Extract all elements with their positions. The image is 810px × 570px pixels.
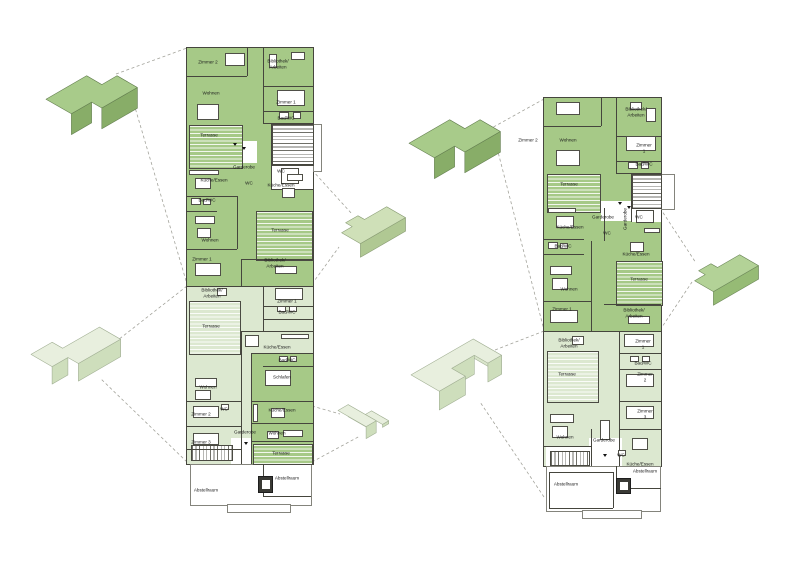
door-marker <box>618 202 622 205</box>
furniture <box>556 150 580 166</box>
wall <box>263 48 264 123</box>
room-label: Abstellraum <box>554 481 578 487</box>
stairs <box>550 451 590 466</box>
furniture <box>550 414 574 423</box>
door-marker <box>242 147 246 150</box>
wall <box>241 331 313 332</box>
wall <box>241 259 242 286</box>
room-label: Bibliothek/ Arbeiten <box>558 338 579 349</box>
plan-annex <box>190 464 312 506</box>
furniture <box>646 108 656 122</box>
furniture <box>282 188 295 198</box>
wall <box>251 401 313 402</box>
furniture <box>632 438 648 450</box>
room-label: Zimmer 2 <box>198 59 217 65</box>
wall <box>251 353 252 464</box>
room-label: Zimmer 1 <box>277 298 296 304</box>
wall <box>619 429 661 430</box>
furniture <box>556 102 580 115</box>
terrace-hatch <box>256 211 313 261</box>
wall <box>187 76 247 77</box>
wall <box>271 164 313 165</box>
furniture <box>644 228 660 233</box>
wall <box>601 98 602 126</box>
room-label: Terrasse <box>272 450 290 456</box>
wall <box>616 173 661 174</box>
service-shaft <box>616 478 631 494</box>
plan-annex <box>661 174 675 210</box>
room-label: Bad/WC <box>635 161 652 167</box>
plan-annex <box>582 510 642 519</box>
furniture <box>225 53 245 66</box>
wall <box>619 401 661 402</box>
furniture <box>283 430 303 437</box>
room-label: Bibliothek/ Arbeiten <box>625 107 646 118</box>
wall <box>544 446 591 447</box>
room-label: Wohnen <box>201 237 218 243</box>
room-label: WC <box>245 180 253 186</box>
floor-plan-left: Zimmer 2Bibliothek/ ArbeitenWohnenZimmer… <box>186 47 314 465</box>
room-label: Küche/Essen <box>200 177 227 183</box>
wall <box>187 449 241 450</box>
room-label: Zimmer 1 <box>192 256 211 262</box>
wall <box>549 472 613 473</box>
wall <box>237 196 238 249</box>
room-label: Terrasse <box>202 323 220 329</box>
room-label: Terrasse <box>560 181 578 187</box>
wall <box>187 249 237 250</box>
wall <box>271 123 272 189</box>
room-label: Schlafen <box>273 374 291 380</box>
room-label: Wohnen <box>202 90 219 96</box>
wall <box>247 48 248 76</box>
stairs <box>191 445 233 461</box>
wall <box>544 301 591 302</box>
furniture <box>189 170 219 175</box>
wall <box>187 211 217 212</box>
furniture <box>287 174 303 181</box>
room-label: Zimmer 2 <box>191 411 210 417</box>
wall <box>631 173 632 222</box>
wall <box>187 401 241 402</box>
wall <box>263 286 264 331</box>
furniture <box>195 216 215 224</box>
wall <box>263 366 313 367</box>
wall <box>604 304 661 305</box>
furniture <box>197 104 219 120</box>
wall <box>591 429 592 466</box>
wall <box>613 472 614 508</box>
stairs <box>632 174 662 209</box>
room-label: Küche/Essen <box>626 461 653 467</box>
room-label: Terrasse <box>630 276 648 282</box>
room-label: Zimmer 1 <box>552 306 571 312</box>
door-marker <box>603 454 607 457</box>
wall <box>263 319 313 320</box>
service-shaft <box>258 476 273 493</box>
room-label: Zimmer 1 <box>276 99 295 105</box>
room-label: Wohnen <box>556 434 573 440</box>
wall <box>187 426 241 427</box>
room-label: Zimmer 3 <box>637 409 653 420</box>
room-label: WC <box>603 230 611 236</box>
room-label: Wohnen <box>559 137 576 143</box>
room-label: Bibliothek/ Arbeiten <box>623 308 644 319</box>
room-label: Zimmer 2 <box>518 137 537 143</box>
room-label: Garderobe <box>233 164 255 170</box>
room-label: Küche/Essen <box>267 182 294 188</box>
room-label: Terrasse <box>200 132 218 138</box>
room-label: Wohnen <box>268 430 285 436</box>
terrace-hatch <box>616 261 663 306</box>
stairs <box>272 124 314 166</box>
room-label: Garderobe <box>622 208 628 230</box>
wall <box>549 472 550 508</box>
room-label: Bad/WC <box>277 115 294 121</box>
wall <box>251 423 313 424</box>
wall <box>619 353 661 354</box>
room-label: WC <box>617 452 625 458</box>
wall <box>251 353 313 354</box>
wall <box>616 98 617 173</box>
room-label: Küche/Essen <box>263 344 290 350</box>
room-label: Bad/WC <box>278 357 295 363</box>
floor-plan-scene: Zimmer 2Bibliothek/ ArbeitenWohnenZimmer… <box>0 0 810 570</box>
furniture <box>253 404 258 422</box>
wall <box>263 496 311 497</box>
terrace-hatch <box>547 351 599 403</box>
room-label: Garderobe <box>593 437 615 443</box>
door-marker <box>244 442 248 445</box>
room-label: Bibliothek/ Arbeiten <box>201 288 222 299</box>
room-label: Bad/WC <box>554 243 571 249</box>
furniture <box>195 263 221 276</box>
room-label: Wohnen <box>199 384 216 390</box>
furniture <box>281 334 309 339</box>
room-label: Bibliothek/ Arbeiten <box>264 258 285 269</box>
room-label: Zimmer 3 <box>191 439 210 445</box>
room-label: WC <box>220 406 228 412</box>
wall <box>544 331 661 332</box>
room-label: Zimmer 1 <box>636 143 653 154</box>
room-label: Bad/WC <box>278 309 295 315</box>
room-label: Garderobe <box>592 214 614 220</box>
room-label: Bad/WC <box>198 197 215 203</box>
room-label: Küche/Essen <box>556 224 583 230</box>
plan-annex <box>313 124 322 172</box>
wall <box>263 306 313 307</box>
wall <box>604 208 605 241</box>
room-label: Abstellraum <box>275 475 299 481</box>
wall <box>631 208 661 209</box>
furniture <box>548 208 576 213</box>
room-label: Bad/WC <box>634 360 651 366</box>
room-label: Abstellraum <box>633 468 657 474</box>
room-label: Bibliothek/ Arbeiten <box>267 59 288 70</box>
wall <box>251 441 313 442</box>
room-label: Wohnen <box>560 286 577 292</box>
floor-plan-right: Zimmer 2Bibliothek/ ArbeitenWohnenZimmer… <box>543 97 662 467</box>
wall <box>241 331 242 464</box>
room-label: WC <box>277 168 285 174</box>
wall <box>263 86 313 87</box>
plan-annex <box>227 504 291 513</box>
room-label: WC <box>635 214 643 220</box>
furniture <box>550 266 572 275</box>
room-label: Küche/Essen <box>622 251 649 257</box>
room-label: Terrasse <box>271 227 289 233</box>
furniture <box>245 335 259 347</box>
furniture <box>195 390 211 400</box>
wall <box>544 126 601 127</box>
room-label: Garderobe <box>234 429 256 435</box>
floor-plans-layer: Zimmer 2Bibliothek/ ArbeitenWohnenZimmer… <box>0 0 810 570</box>
wall <box>544 239 584 240</box>
furniture <box>291 52 305 60</box>
wall <box>619 331 620 466</box>
room-label: Terrasse <box>558 371 576 377</box>
room-label: Küche/Essen <box>268 407 295 413</box>
wall <box>544 254 584 255</box>
room-label: Zimmer 2 <box>637 372 653 383</box>
room-label: Abstellraum <box>194 487 218 493</box>
furniture <box>550 310 578 323</box>
room-label: Zimmer 1 <box>634 339 652 350</box>
door-marker <box>233 143 237 146</box>
wall <box>591 241 592 331</box>
wall <box>619 369 661 370</box>
wall <box>549 508 613 509</box>
